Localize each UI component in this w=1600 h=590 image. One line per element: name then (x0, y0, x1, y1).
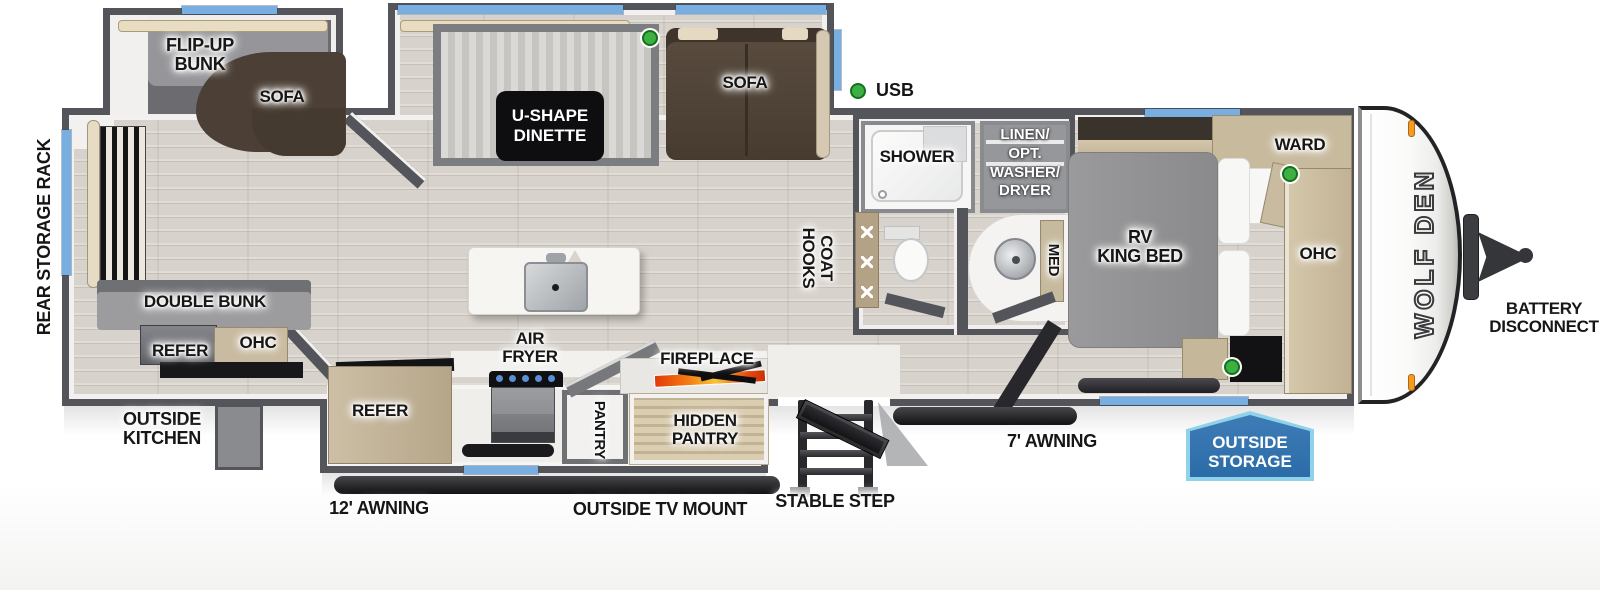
awning-roller-inside (1078, 378, 1220, 393)
rear-window (62, 130, 71, 275)
hidden-pantry-label: HIDDEN PANTRY (645, 412, 765, 454)
usb-dot-nightstand (1224, 359, 1240, 375)
nightstand (1182, 338, 1228, 380)
storage-rack-slats (100, 126, 146, 282)
refer-rear-label: REFER (145, 342, 215, 362)
sofa-main-label: SOFA (713, 74, 777, 94)
shower-drain (878, 190, 887, 199)
double-bunk-label: DOUBLE BUNK (130, 293, 280, 315)
flip-up-bunk-label: FLIP-UP BUNK (145, 36, 255, 76)
dinette-window-left (398, 5, 623, 14)
bedroom-overhead-dark (1078, 117, 1212, 142)
sofa-bunk-label: SOFA (250, 88, 314, 108)
storage-rack-rail (87, 120, 100, 288)
coat-hook-icon-3 (861, 286, 873, 298)
step-rung-4 (800, 468, 872, 475)
dinette-side-window (834, 30, 841, 90)
sink-drain (552, 284, 559, 291)
bed-pillow-bottom (1218, 250, 1250, 336)
toilet-bowl (893, 238, 929, 282)
awning-12-label: 12' AWNING (319, 499, 439, 521)
air-fryer-label: AIR FRYER (495, 330, 565, 370)
stove-knob-5 (548, 375, 555, 382)
dinette-window-right (676, 5, 826, 14)
stove-knob-3 (522, 375, 529, 382)
bath-sink-drain (1012, 256, 1020, 264)
stove-knob-2 (509, 375, 516, 382)
shower-label: SHOWER (875, 148, 959, 168)
ward-label: WARD (1268, 136, 1332, 156)
front-cap-seam (1370, 114, 1372, 396)
usb-label: USB (876, 80, 936, 102)
med-label: MED (1039, 230, 1061, 290)
battery-disconnect-label: BATTERY DISCONNECT (1486, 300, 1600, 340)
step-rung-3 (800, 450, 872, 457)
air-fryer-oven (491, 387, 555, 443)
rear-sofa-seat (252, 108, 345, 156)
usb-dot-dinette (642, 30, 658, 46)
stove-knob-4 (535, 375, 542, 382)
pantry-label: PANTRY (585, 370, 607, 490)
island-logo-triangle (568, 250, 582, 262)
clearance-light-bottom (1408, 374, 1415, 391)
ohc-bedroom-label: OHC (1288, 245, 1348, 265)
linen-opt-label: LINEN/ OPT. WASHER/ DRYER (982, 126, 1068, 210)
rv-king-bed-label: RV KING BED (1090, 228, 1190, 272)
outside-storage-label: OUTSIDE STORAGE (1208, 433, 1292, 477)
main-sofa-divider (745, 44, 748, 156)
outside-storage-badge-fill: OUTSIDE STORAGE (1190, 415, 1310, 477)
entry-door-opening (778, 397, 890, 406)
outside-kitchen-label: OUTSIDE KITCHEN (100, 410, 224, 456)
fireplace-label: FIREPLACE (655, 350, 759, 370)
stable-step-label: STABLE STEP (760, 492, 910, 514)
main-sofa-armrest (816, 30, 830, 158)
sofa-headrest-right (782, 28, 808, 40)
bunk-bolster (118, 20, 328, 32)
usb-dot-legend (850, 83, 866, 99)
hitch-jack-bar (1463, 214, 1479, 300)
bedroom-window-bottom (1100, 397, 1248, 405)
stove-knob-1 (496, 375, 503, 382)
rear-counter (160, 362, 303, 378)
entry-landing (768, 345, 900, 399)
bedroom-black-cabinet (1230, 336, 1282, 382)
hitch-a-frame (1478, 232, 1524, 282)
awning-7-label: 7' AWNING (992, 432, 1112, 454)
outside-tv-mount-label: OUTSIDE TV MOUNT (565, 500, 755, 522)
coat-hook-icon-2 (861, 256, 873, 268)
rear-storage-rack-label: REAR STORAGE RACK (35, 134, 57, 340)
coat-hook-icon-1 (861, 226, 873, 238)
kitchen-window-bottom (464, 466, 538, 474)
dinette-table: U-SHAPE DINETTE (496, 91, 604, 161)
refer-kitchen-label: REFER (345, 402, 415, 422)
bed-pillow-top (1218, 158, 1250, 244)
usb-dot-ward (1282, 166, 1298, 182)
awning-7-tube (893, 407, 1077, 425)
bedroom-ohc-cabinet (1284, 168, 1352, 394)
hitch-coupler (1518, 248, 1533, 263)
awning-12-tube (334, 476, 780, 494)
u-shape-dinette-label: U-SHAPE DINETTE (512, 106, 589, 147)
floorplan-canvas: U-SHAPE DINETTE (0, 0, 1600, 590)
coat-hooks-label: COAT HOOKS (813, 203, 835, 313)
ohc-rear-label: OHC (228, 334, 288, 354)
brand-wordmark: WOLF DEN (1404, 133, 1444, 373)
bunk-slide-window (182, 6, 277, 14)
sofa-headrest-left (678, 28, 718, 40)
bath-divider-wall (954, 208, 968, 335)
stove-mat (462, 444, 554, 457)
